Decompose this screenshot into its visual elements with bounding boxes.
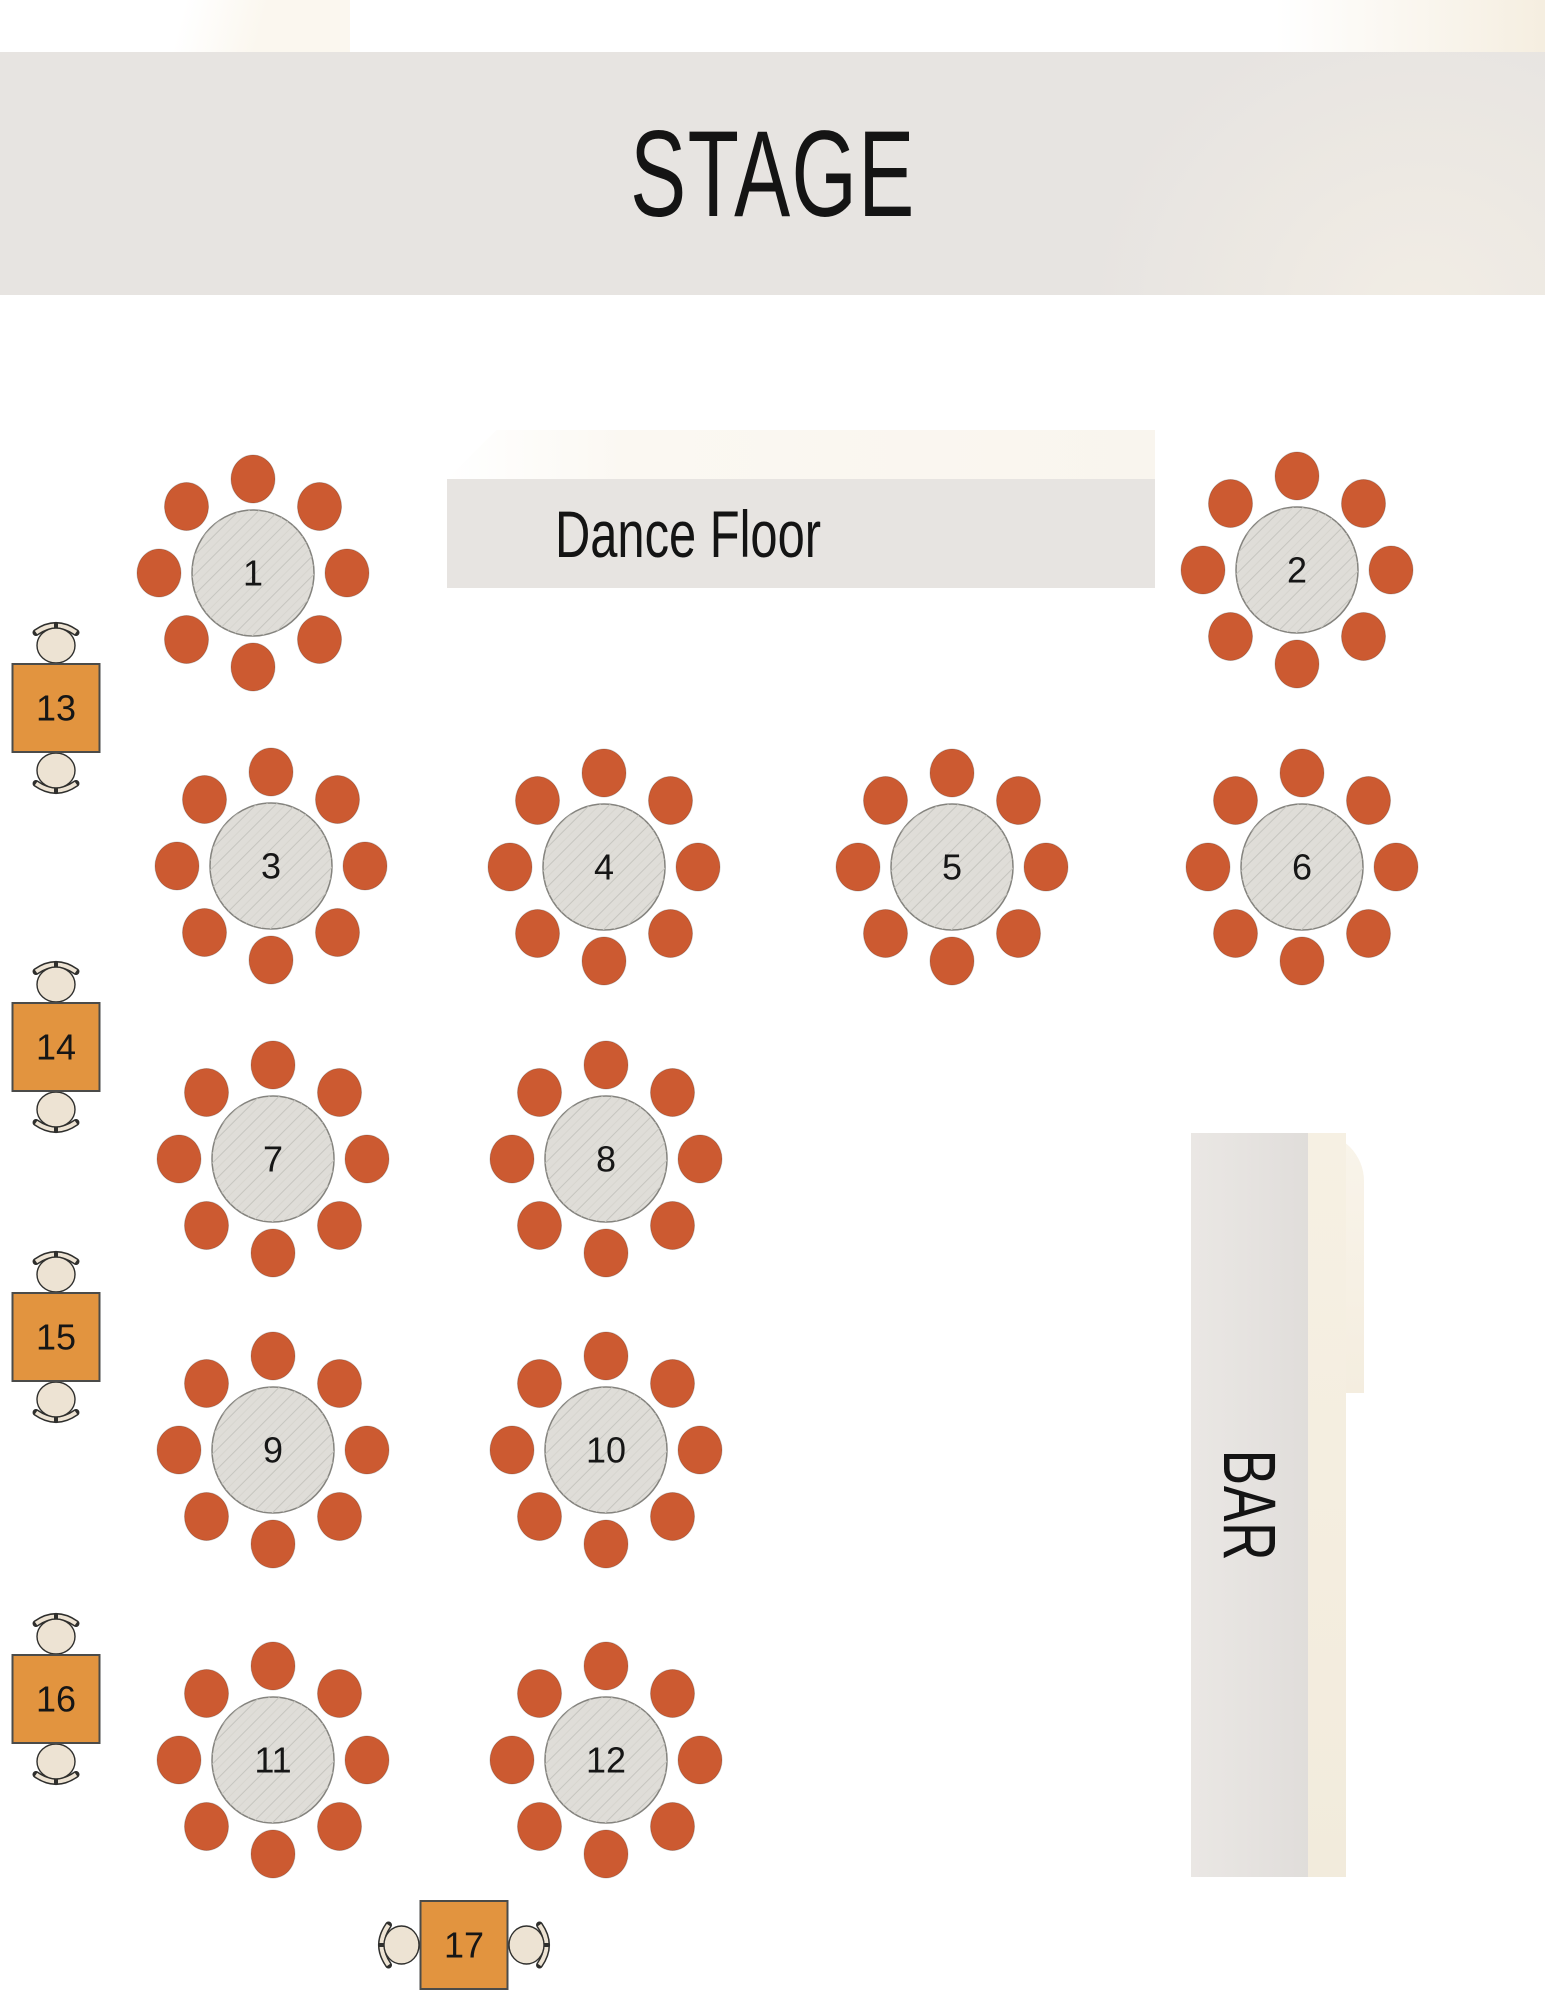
chair — [676, 843, 720, 891]
chair — [490, 1736, 534, 1784]
chair — [185, 1202, 229, 1250]
chair — [651, 1360, 695, 1408]
chair — [1347, 777, 1391, 825]
chair — [345, 1426, 389, 1474]
chair — [1342, 480, 1386, 528]
chair — [316, 909, 360, 957]
chair — [1280, 749, 1324, 797]
stage-label: STAGE — [630, 103, 916, 244]
dance-floor-area: Dance Floor — [447, 479, 1155, 588]
chair — [1347, 910, 1391, 958]
round-table-10: 10 — [476, 1320, 736, 1580]
chair — [298, 616, 342, 664]
chair — [1181, 546, 1225, 594]
bar-label: BAR — [1207, 1449, 1292, 1561]
chair — [345, 1736, 389, 1784]
chair — [678, 1426, 722, 1474]
small-table-16: 16 — [0, 1574, 181, 1824]
table-number: 8 — [596, 1139, 616, 1180]
chair — [930, 937, 974, 985]
table-number: 9 — [263, 1430, 283, 1471]
chair — [185, 1069, 229, 1117]
chair — [251, 1041, 295, 1089]
chair — [997, 910, 1041, 958]
chair — [183, 909, 227, 957]
table-number: 5 — [942, 847, 962, 888]
chair — [649, 910, 693, 958]
chair-seat — [37, 753, 75, 788]
chair — [518, 1670, 562, 1718]
small-table-17: 17 — [339, 1820, 589, 2000]
chair — [518, 1360, 562, 1408]
chair — [249, 936, 293, 984]
chair — [488, 843, 532, 891]
chair — [298, 483, 342, 531]
chair — [185, 1803, 229, 1851]
table-number: 13 — [36, 688, 76, 729]
chair — [582, 937, 626, 985]
chair — [231, 643, 275, 691]
chair-seat — [37, 1382, 75, 1417]
chair — [518, 1069, 562, 1117]
chair — [325, 549, 369, 597]
chair-seat — [37, 1257, 75, 1292]
round-table-4: 4 — [474, 737, 734, 997]
round-table-7: 7 — [143, 1029, 403, 1289]
table-number: 1 — [243, 553, 263, 594]
chair — [651, 1803, 695, 1851]
table-number: 16 — [36, 1679, 76, 1720]
chair — [651, 1202, 695, 1250]
chair-seat — [37, 967, 75, 1002]
chair — [185, 1493, 229, 1541]
chair — [864, 910, 908, 958]
chair — [316, 776, 360, 824]
chair — [516, 777, 560, 825]
chair — [36, 1614, 76, 1655]
chair-seat — [37, 1092, 75, 1127]
chair-seat — [37, 1744, 75, 1779]
chair — [251, 1520, 295, 1568]
chair — [997, 777, 1041, 825]
chair — [651, 1493, 695, 1541]
chair — [251, 1229, 295, 1277]
chair — [584, 1642, 628, 1690]
chair — [345, 1135, 389, 1183]
table-number: 6 — [1292, 847, 1312, 888]
table-number: 17 — [444, 1925, 484, 1966]
chair — [318, 1069, 362, 1117]
round-table-9: 9 — [143, 1320, 403, 1580]
chair — [1214, 910, 1258, 958]
chair — [318, 1670, 362, 1718]
chair — [509, 1925, 550, 1965]
cream-streak-decoration — [90, 0, 350, 52]
chair-seat — [509, 1926, 544, 1964]
cream-corner-decoration — [1245, 0, 1545, 52]
chair — [165, 483, 209, 531]
chair — [251, 1642, 295, 1690]
chair — [1369, 546, 1413, 594]
bar-wall-decoration — [1308, 1133, 1346, 1877]
chair — [249, 748, 293, 796]
chair — [1275, 452, 1319, 500]
chair — [1214, 777, 1258, 825]
chair — [185, 1360, 229, 1408]
table-number: 3 — [261, 846, 281, 887]
chair — [36, 1744, 76, 1785]
table-number: 11 — [254, 1740, 291, 1781]
table-number: 10 — [586, 1430, 626, 1471]
chair — [516, 910, 560, 958]
round-table-6: 6 — [1172, 737, 1432, 997]
dance-floor-label: Dance Floor — [555, 496, 821, 572]
chair — [1374, 843, 1418, 891]
chair — [678, 1736, 722, 1784]
chair — [678, 1135, 722, 1183]
floor-plan-canvas: STAGE Dance Floor BAR 123456789101112131… — [0, 0, 1545, 2000]
chair — [864, 777, 908, 825]
chair — [584, 1229, 628, 1277]
chair — [518, 1202, 562, 1250]
chair-seat — [37, 1619, 75, 1654]
chair — [251, 1332, 295, 1380]
chair — [36, 1252, 76, 1293]
table-number: 2 — [1287, 550, 1307, 591]
round-table-2: 2 — [1167, 440, 1427, 700]
chair — [36, 962, 76, 1003]
chair — [318, 1493, 362, 1541]
chair — [36, 623, 76, 664]
chair — [584, 1041, 628, 1089]
chair — [318, 1202, 362, 1250]
bar-area: BAR — [1191, 1133, 1308, 1877]
chair — [518, 1493, 562, 1541]
small-table-13: 13 — [0, 583, 181, 833]
chair — [379, 1925, 420, 1965]
round-table-8: 8 — [476, 1029, 736, 1289]
chair — [36, 1092, 76, 1133]
chair — [490, 1135, 534, 1183]
chair — [231, 455, 275, 503]
round-table-5: 5 — [822, 737, 1082, 997]
chair-seat — [384, 1926, 419, 1964]
chair — [183, 776, 227, 824]
chair — [582, 749, 626, 797]
chair — [651, 1069, 695, 1117]
chair — [1280, 937, 1324, 985]
table-number: 4 — [594, 847, 614, 888]
table-number: 12 — [586, 1740, 626, 1781]
chair — [584, 1332, 628, 1380]
chair — [1024, 843, 1068, 891]
table-number: 14 — [36, 1027, 76, 1068]
chair — [36, 1382, 76, 1423]
small-table-15: 15 — [0, 1212, 181, 1462]
chair — [490, 1426, 534, 1474]
chair — [185, 1670, 229, 1718]
chair — [36, 753, 76, 794]
chair — [1209, 613, 1253, 661]
chair — [584, 1830, 628, 1878]
chair — [651, 1670, 695, 1718]
table-number: 7 — [263, 1139, 283, 1180]
chair — [1186, 843, 1230, 891]
chair — [649, 777, 693, 825]
chair — [318, 1360, 362, 1408]
table-number: 15 — [36, 1317, 76, 1358]
stage-area: STAGE — [0, 52, 1545, 295]
chair-seat — [37, 628, 75, 663]
chair — [343, 842, 387, 890]
small-table-14: 14 — [0, 922, 181, 1172]
chair — [584, 1520, 628, 1568]
chair — [930, 749, 974, 797]
chair — [1209, 480, 1253, 528]
chair — [1275, 640, 1319, 688]
chair — [155, 842, 199, 890]
chair — [251, 1830, 295, 1878]
chair — [836, 843, 880, 891]
chair — [1342, 613, 1386, 661]
